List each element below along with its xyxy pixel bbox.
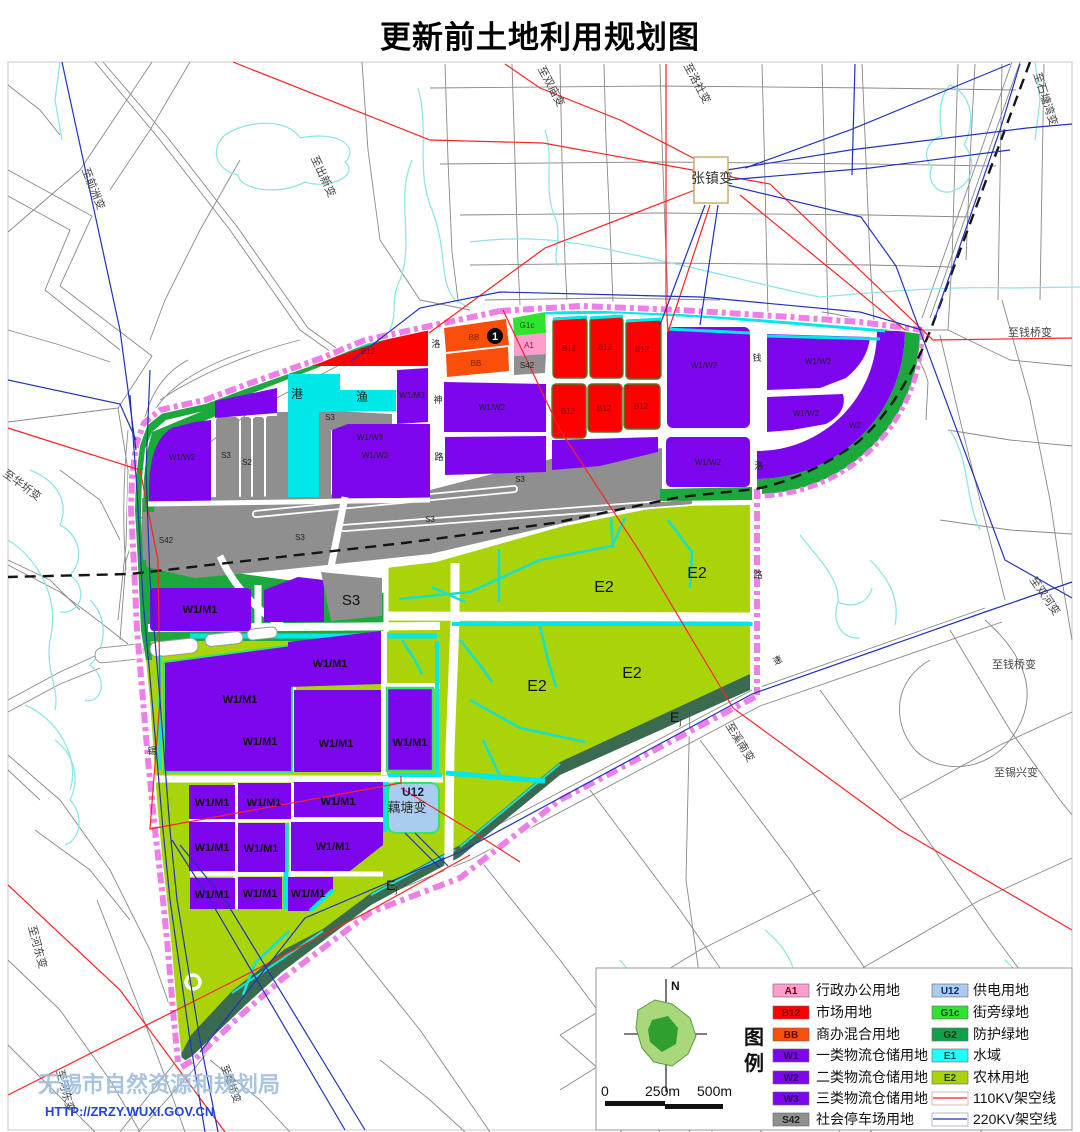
svg-text:A1: A1 (524, 341, 534, 350)
svg-text:二类物流仓储用地: 二类物流仓储用地 (816, 1069, 928, 1085)
svg-text:500m: 500m (697, 1083, 732, 1099)
svg-text:B12: B12 (634, 402, 649, 411)
svg-text:BB: BB (784, 1030, 798, 1041)
svg-text:110KV架空线: 110KV架空线 (973, 1090, 1056, 1106)
svg-text:一类物流仓储用地: 一类物流仓储用地 (816, 1047, 928, 1063)
svg-text:路: 路 (434, 451, 443, 462)
svg-text:U12: U12 (941, 986, 960, 997)
svg-text:W1/W2: W1/W2 (805, 357, 832, 366)
svg-text:W1/M1: W1/M1 (243, 736, 278, 748)
svg-text:洛: 洛 (754, 460, 763, 471)
svg-text:B12: B12 (597, 404, 612, 413)
svg-text:渔: 渔 (356, 390, 368, 404)
svg-text:行政办公用地: 行政办公用地 (816, 982, 900, 998)
svg-text:街旁绿地: 街旁绿地 (973, 1004, 1029, 1020)
svg-text:S3: S3 (425, 515, 435, 524)
svg-text:W1/M1: W1/M1 (313, 658, 348, 670)
svg-text:BB: BB (471, 359, 482, 368)
svg-text:神: 神 (433, 394, 442, 405)
svg-text:220KV架空线: 220KV架空线 (973, 1111, 1057, 1127)
svg-text:S3: S3 (325, 413, 335, 422)
svg-text:W2: W2 (849, 421, 862, 430)
svg-text:B12: B12 (598, 343, 613, 352)
svg-text:W1/M3: W1/M3 (399, 391, 425, 400)
svg-text:B12: B12 (561, 407, 576, 416)
svg-text:W1/M1: W1/M1 (195, 889, 230, 901)
svg-text:W1/W2: W1/W2 (691, 361, 718, 370)
svg-text:B12: B12 (782, 1008, 801, 1019)
svg-text:W1/W2: W1/W2 (793, 409, 820, 418)
svg-text:钱: 钱 (752, 352, 761, 363)
svg-text:E2: E2 (622, 665, 642, 682)
svg-text:0: 0 (601, 1083, 609, 1099)
svg-text:B12: B12 (361, 347, 376, 356)
svg-text:商办混合用地: 商办混合用地 (816, 1026, 900, 1042)
svg-text:锡: 锡 (147, 746, 156, 756)
svg-text:例: 例 (744, 1051, 764, 1075)
svg-text:G1c: G1c (520, 321, 535, 330)
svg-text:张镇变: 张镇变 (691, 170, 733, 186)
svg-text:水域: 水域 (973, 1047, 1001, 1063)
svg-text:至锡兴变: 至锡兴变 (994, 765, 1038, 779)
svg-text:E2: E2 (527, 678, 547, 695)
svg-text:W1/M1: W1/M1 (195, 842, 230, 854)
svg-text:W1/W2: W1/W2 (169, 453, 196, 462)
svg-text:BB: BB (469, 333, 480, 342)
svg-text:E2: E2 (944, 1073, 957, 1084)
svg-text:W3: W3 (784, 1094, 799, 1105)
svg-text:HTTP://ZRZY.WUXI.GOV.CN: HTTP://ZRZY.WUXI.GOV.CN (45, 1104, 214, 1119)
svg-text:W1/W3: W1/W3 (357, 433, 384, 442)
svg-text:W1/M1: W1/M1 (319, 738, 354, 750)
svg-text:W1/M1: W1/M1 (183, 604, 218, 616)
svg-text:至钱桥变: 至钱桥变 (992, 657, 1036, 671)
svg-text:路: 路 (753, 569, 762, 580)
svg-text:W1/M1: W1/M1 (195, 797, 230, 809)
svg-text:更新前土地利用规划图: 更新前土地利用规划图 (380, 20, 700, 55)
svg-text:G2: G2 (943, 1030, 957, 1041)
svg-text:防护绿地: 防护绿地 (973, 1026, 1029, 1042)
svg-text:藕塘变: 藕塘变 (387, 800, 426, 815)
svg-text:250m: 250m (645, 1083, 680, 1099)
svg-text:三类物流仓储用地: 三类物流仓储用地 (816, 1090, 928, 1106)
svg-text:港: 港 (291, 387, 303, 401)
svg-text:至钱桥变: 至钱桥变 (1008, 325, 1052, 339)
svg-text:E2: E2 (594, 579, 614, 596)
svg-text:洛: 洛 (431, 338, 440, 349)
svg-text:S3: S3 (342, 592, 360, 609)
svg-text:S42: S42 (520, 361, 535, 370)
svg-text:W1/W2: W1/W2 (479, 403, 506, 412)
svg-text:W1/M1: W1/M1 (247, 797, 282, 809)
svg-text:W1/M1: W1/M1 (223, 694, 258, 706)
svg-text:农林用地: 农林用地 (973, 1069, 1029, 1085)
svg-text:S3: S3 (221, 451, 231, 460)
svg-text:社会停车场用地: 社会停车场用地 (816, 1111, 914, 1127)
svg-text:W1/W2: W1/W2 (695, 458, 722, 467)
svg-text:B12: B12 (635, 345, 650, 354)
svg-text:U12: U12 (402, 785, 424, 799)
svg-text:N: N (671, 979, 680, 993)
svg-text:S3: S3 (515, 475, 525, 484)
svg-text:W1/M1: W1/M1 (316, 841, 351, 853)
svg-text:1: 1 (492, 331, 498, 343)
svg-text:S42: S42 (159, 536, 174, 545)
svg-text:供电用地: 供电用地 (973, 982, 1029, 998)
svg-text:W1/M1: W1/M1 (393, 737, 428, 749)
svg-text:市场用地: 市场用地 (816, 1004, 872, 1020)
svg-text:B12: B12 (562, 344, 577, 353)
svg-text:W1/M1: W1/M1 (291, 888, 326, 900)
svg-text:W1/M1: W1/M1 (321, 796, 356, 808)
svg-text:W1: W1 (784, 1051, 799, 1062)
svg-text:S2: S2 (242, 458, 252, 467)
svg-text:E2: E2 (687, 565, 707, 582)
svg-text:W2: W2 (784, 1073, 799, 1084)
svg-text:无锡市自然资源和规划局: 无锡市自然资源和规划局 (38, 1072, 280, 1097)
svg-text:S42: S42 (782, 1115, 800, 1126)
svg-text:W1/M1: W1/M1 (244, 843, 279, 855)
svg-text:W1/W3: W1/W3 (362, 451, 389, 460)
svg-text:E1: E1 (944, 1051, 957, 1062)
svg-text:W1/M1: W1/M1 (243, 888, 278, 900)
svg-text:图: 图 (744, 1026, 764, 1049)
svg-text:G1c: G1c (941, 1008, 960, 1019)
svg-text:S3: S3 (295, 533, 305, 542)
svg-text:A1: A1 (785, 986, 798, 997)
